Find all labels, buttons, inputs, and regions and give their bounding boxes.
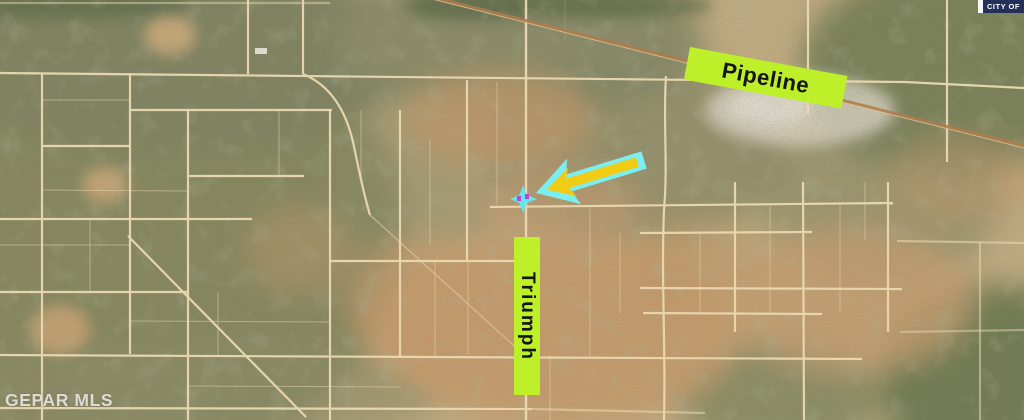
city-attribution-badge: CITY OF (978, 0, 1024, 13)
satellite-map-photo: Pipeline Triumph GEPAR MLS CITY OF (0, 0, 1024, 420)
badge-label: CITY OF (983, 0, 1024, 13)
street-label-triumph: Triumph (514, 237, 540, 395)
street-label-text: Triumph (516, 272, 538, 361)
small-structure (255, 48, 267, 54)
aerial-terrain (0, 0, 1024, 420)
watermark-text: GEPAR MLS (5, 390, 113, 411)
